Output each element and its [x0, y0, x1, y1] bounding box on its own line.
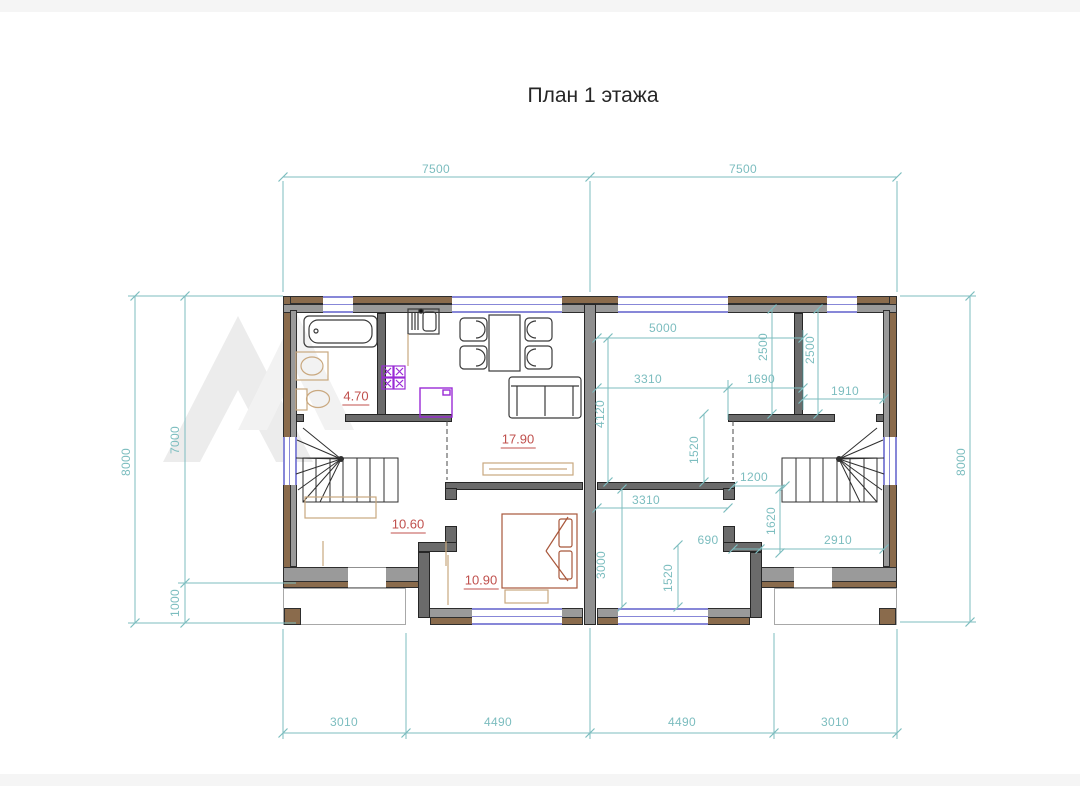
dim-int-690: 690 — [698, 533, 719, 547]
room-label-hall: 10.60 — [391, 517, 426, 534]
room-label-living: 17.90 — [501, 432, 536, 449]
floor-plan-drawing: План 1 этажа — [0, 0, 1080, 786]
bedroom-bench-icon — [505, 590, 548, 603]
dim-int-1620: 1620 — [764, 507, 778, 535]
dim-int-1520-b: 1520 — [661, 564, 675, 592]
floor-plan-page: { "title": "План 1 этажа", "dims": { "to… — [0, 0, 1080, 786]
dim-int-5000: 5000 — [649, 321, 677, 335]
kitchen-counter-icon — [420, 388, 452, 417]
dim-bottom-4490-left: 4490 — [484, 715, 512, 729]
dim-int-3310-top: 3310 — [634, 372, 662, 386]
dim-int-2500-b: 2500 — [803, 336, 817, 364]
dim-int-1690: 1690 — [747, 372, 775, 386]
bathroom-sink-icon — [296, 352, 328, 380]
sofa-icon — [509, 377, 581, 418]
stove-icon — [382, 366, 405, 389]
dim-left-8000: 8000 — [119, 448, 133, 476]
dim-right-8000: 8000 — [954, 448, 968, 476]
dim-int-1520-a: 1520 — [687, 436, 701, 464]
hall-closet-icon — [305, 497, 448, 605]
dining-table-icon — [489, 315, 520, 371]
bathtub-icon — [304, 316, 377, 347]
kitchen-sink-icon — [408, 309, 439, 334]
stairs-right — [782, 428, 884, 502]
toilet-icon — [296, 389, 330, 410]
dim-left-1000: 1000 — [168, 589, 182, 617]
double-bed-icon — [502, 514, 577, 588]
dim-bottom-4490-right: 4490 — [668, 715, 696, 729]
dim-int-3000: 3000 — [594, 551, 608, 579]
dim-top-right-7500: 7500 — [729, 162, 757, 176]
room-label-bathroom: 4.70 — [342, 389, 369, 406]
dim-top-left-7500: 7500 — [422, 162, 450, 176]
dim-int-1200: 1200 — [740, 470, 768, 484]
plan-line-art — [0, 0, 1080, 786]
stairs-left — [296, 428, 398, 502]
dim-int-1910: 1910 — [831, 384, 859, 398]
dim-bottom-3010-right: 3010 — [821, 715, 849, 729]
tv-stand-icon — [483, 463, 573, 475]
dim-int-3310-bottom: 3310 — [632, 493, 660, 507]
dim-bottom-3010-left: 3010 — [330, 715, 358, 729]
dim-int-2500-a: 2500 — [756, 333, 770, 361]
dim-int-2910: 2910 — [824, 533, 852, 547]
room-label-bedroom: 10.90 — [464, 573, 499, 590]
dim-left-7000: 7000 — [168, 426, 182, 454]
dining-chairs-icon — [460, 318, 552, 369]
dim-int-4120: 4120 — [593, 400, 607, 428]
